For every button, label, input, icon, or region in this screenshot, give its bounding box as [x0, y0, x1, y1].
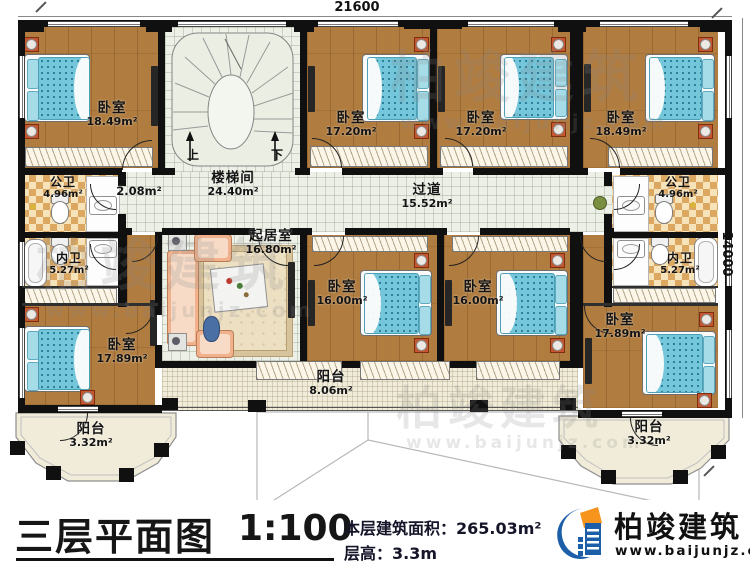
table-decor [244, 292, 249, 297]
wall [620, 168, 725, 175]
room-area: 16.00m² [452, 295, 503, 307]
room-name: 卧室 [467, 111, 496, 126]
room-label-bath-public-left: 公卫 4.96m² [32, 176, 94, 201]
window [318, 21, 398, 27]
room-area: 16.80m² [245, 244, 296, 256]
wall [118, 228, 132, 235]
room-area: 16.00m² [316, 295, 367, 307]
floor-height-label: 层高： [344, 544, 392, 563]
dimension-tick [35, 1, 46, 12]
floor-area-value: 265.03m² [456, 519, 541, 538]
wall [152, 168, 175, 175]
room-name: 内卫 [56, 252, 82, 265]
dimension-right-value: 14000 [719, 224, 734, 284]
balcony-post [470, 400, 488, 412]
room-name: 阳台 [317, 370, 346, 385]
balcony-window [476, 361, 560, 380]
wall [342, 168, 443, 175]
room-area: 17.89m² [594, 328, 645, 340]
room-name: 卧室 [98, 101, 127, 116]
pillow [419, 275, 431, 304]
room-name: 公卫 [50, 176, 76, 189]
wall [480, 228, 570, 235]
tv [288, 262, 295, 318]
pillow [555, 306, 567, 335]
wall [22, 168, 122, 175]
room-name: 卧室 [464, 280, 493, 295]
wall [430, 27, 437, 168]
room-name: 阳台 [635, 420, 664, 435]
mattress [504, 57, 554, 118]
room-name: 阳台 [77, 422, 106, 437]
room-name: 公卫 [665, 176, 691, 189]
stair-up-label: 上 [182, 146, 204, 163]
side-table [168, 333, 187, 351]
logo-url: www.baijunjz.com [615, 543, 750, 559]
table-decor [226, 278, 233, 285]
window [19, 56, 25, 118]
balcony-post [560, 398, 576, 410]
window [468, 21, 554, 27]
room-label-closet: 2.08m² [114, 185, 164, 198]
room-label-bath-public-right: 公卫 4.96m² [646, 176, 710, 201]
tv [308, 66, 315, 112]
room-name: 过道 [413, 183, 442, 198]
room-label-bedroom-top-mid1: 卧室 17.20m² [312, 111, 390, 138]
floor-area-line: 本层建筑面积：265.03m² [344, 516, 541, 541]
armchair [194, 234, 232, 262]
floor-plan-page: 上 下 [0, 0, 750, 575]
side-table [168, 233, 187, 251]
nightstand [551, 122, 566, 137]
plan-title: 三层平面图 [15, 506, 215, 561]
wall [473, 168, 588, 175]
mattress [646, 334, 703, 393]
room-label-bedroom-bottom-mid1: 卧室 16.00m² [306, 280, 378, 307]
window [48, 21, 140, 27]
towel-ring [30, 204, 36, 210]
balcony-post [248, 400, 266, 412]
room-area: 18.49m² [595, 126, 646, 138]
building-info: 本层建筑面积：265.03m² 层高：3.3m [344, 516, 541, 566]
room-area: 17.89m² [96, 353, 147, 365]
wall [22, 286, 118, 288]
pillow [555, 89, 567, 117]
wardrobe [613, 288, 716, 303]
room-label-bedroom-bottom-left: 卧室 17.89m² [86, 338, 158, 365]
room-area: 18.49m² [86, 116, 137, 128]
wardrobe [608, 147, 713, 167]
room-label-bedroom-top-right: 卧室 18.49m² [582, 111, 660, 138]
floor-height-value: 3.3m [392, 544, 437, 563]
room-label-balcony-left: 阳台 3.32m² [58, 422, 124, 449]
double-bed [642, 331, 716, 395]
nightstand [24, 124, 39, 139]
nightstand [550, 253, 565, 268]
title-block: 三层平面图 1:100 本层建筑面积：265.03m² 层高：3.3m 柏竣建筑… [0, 500, 750, 575]
pillow [703, 336, 715, 364]
room-label-bath-private-left: 内卫 5.27m² [38, 252, 100, 277]
room-name: 卧室 [328, 280, 357, 295]
room-label-living-room: 起居室 16.80m² [240, 229, 302, 256]
wall [612, 286, 718, 288]
room-area: 3.32m² [627, 435, 670, 447]
wardrobe [24, 288, 117, 304]
balcony-post [162, 398, 178, 410]
nightstand [414, 253, 429, 268]
window [726, 56, 732, 118]
potted-plant [593, 196, 607, 210]
tv [585, 338, 592, 384]
sofa [167, 250, 199, 346]
stair-down-label: 下 [266, 146, 288, 163]
person-figure [203, 316, 220, 342]
wall-pillar [18, 20, 44, 32]
room-area: 17.20m² [455, 126, 506, 138]
room-name: 内卫 [667, 252, 693, 265]
wall [158, 27, 165, 168]
table-decor [236, 283, 243, 290]
room-label-balcony-center: 阳台 8.06m² [290, 370, 372, 397]
nightstand [697, 393, 712, 408]
towel-ring [690, 202, 696, 208]
mattress [38, 329, 90, 390]
room-label-bedroom-bottom-right: 卧室 17.89m² [584, 313, 656, 340]
dimension-top-value: 21600 [320, 0, 394, 15]
room-area: 8.06m² [309, 385, 352, 397]
room-label-bedroom-bottom-mid2: 卧室 16.00m² [442, 280, 514, 307]
nightstand [550, 338, 565, 353]
room-area: 5.27m² [660, 265, 699, 276]
logo-name: 柏竣建筑 [614, 504, 742, 546]
window [600, 21, 688, 27]
room-area: 4.96m² [43, 189, 82, 200]
room-label-corridor: 过道 15.52m² [388, 183, 466, 210]
room-label-bedroom-top-left: 卧室 18.49m² [72, 101, 152, 128]
wall [345, 228, 447, 235]
nightstand [414, 338, 429, 353]
pillow [419, 306, 431, 335]
pillow [417, 91, 429, 121]
nightstand [414, 37, 429, 52]
window [726, 330, 732, 398]
room-area: 5.27m² [49, 265, 88, 276]
nightstand [551, 37, 566, 52]
nightstand [24, 37, 39, 52]
balcony-window [360, 361, 450, 380]
room-area: 4.96m² [658, 189, 697, 200]
room-label-balcony-right: 阳台 3.32m² [616, 420, 682, 447]
room-label-stairwell: 楼梯间 24.40m² [193, 171, 273, 198]
room-name: 卧室 [607, 111, 636, 126]
tv [151, 66, 158, 126]
dimension-line-top [18, 16, 732, 17]
nightstand [414, 124, 429, 139]
pillow [702, 91, 714, 121]
room-name: 卧室 [108, 338, 137, 353]
room-name: 卧室 [606, 313, 635, 328]
room-label-bath-private-right: 内卫 5.27m² [648, 252, 712, 277]
wall [604, 172, 612, 186]
title-underline [16, 558, 334, 561]
room-area: 2.08m² [116, 185, 161, 198]
wall [22, 232, 118, 238]
nightstand [699, 312, 714, 327]
wall [612, 232, 718, 238]
window [19, 328, 25, 398]
plan-scale: 1:100 [238, 508, 353, 549]
room-area: 15.52m² [401, 198, 452, 210]
balcony-door-opening [622, 411, 662, 417]
wall [295, 168, 310, 175]
pillow [702, 59, 714, 89]
pillow [417, 59, 429, 89]
pillow [555, 275, 567, 304]
wall-pillar [700, 20, 732, 32]
coffee-table [210, 263, 268, 312]
tv [584, 64, 591, 112]
pillow [555, 59, 567, 87]
floor-area-label: 本层建筑面积： [344, 519, 456, 538]
wall [118, 232, 127, 307]
logo-icon [556, 503, 610, 563]
nightstand [698, 124, 713, 139]
wall [570, 20, 583, 168]
room-name: 楼梯间 [211, 171, 255, 186]
balcony-door-opening [58, 406, 98, 412]
wall [570, 232, 583, 368]
room-area: 17.20m² [325, 126, 376, 138]
dimension-line-right [742, 18, 743, 418]
window [19, 242, 25, 286]
room-area: 3.32m² [69, 437, 112, 449]
pillow [703, 366, 715, 394]
nightstand [698, 37, 713, 52]
nightstand [80, 390, 95, 405]
room-label-bedroom-top-mid2: 卧室 17.20m² [442, 111, 520, 138]
tv [438, 66, 445, 112]
room-name: 卧室 [337, 111, 366, 126]
floor-height-line: 层高：3.3m [344, 541, 541, 566]
window [178, 21, 286, 27]
double-bed [24, 326, 90, 392]
room-area: 24.40m² [207, 186, 258, 198]
nightstand [24, 307, 39, 322]
wall [300, 27, 307, 168]
room-name: 起居室 [249, 229, 293, 244]
